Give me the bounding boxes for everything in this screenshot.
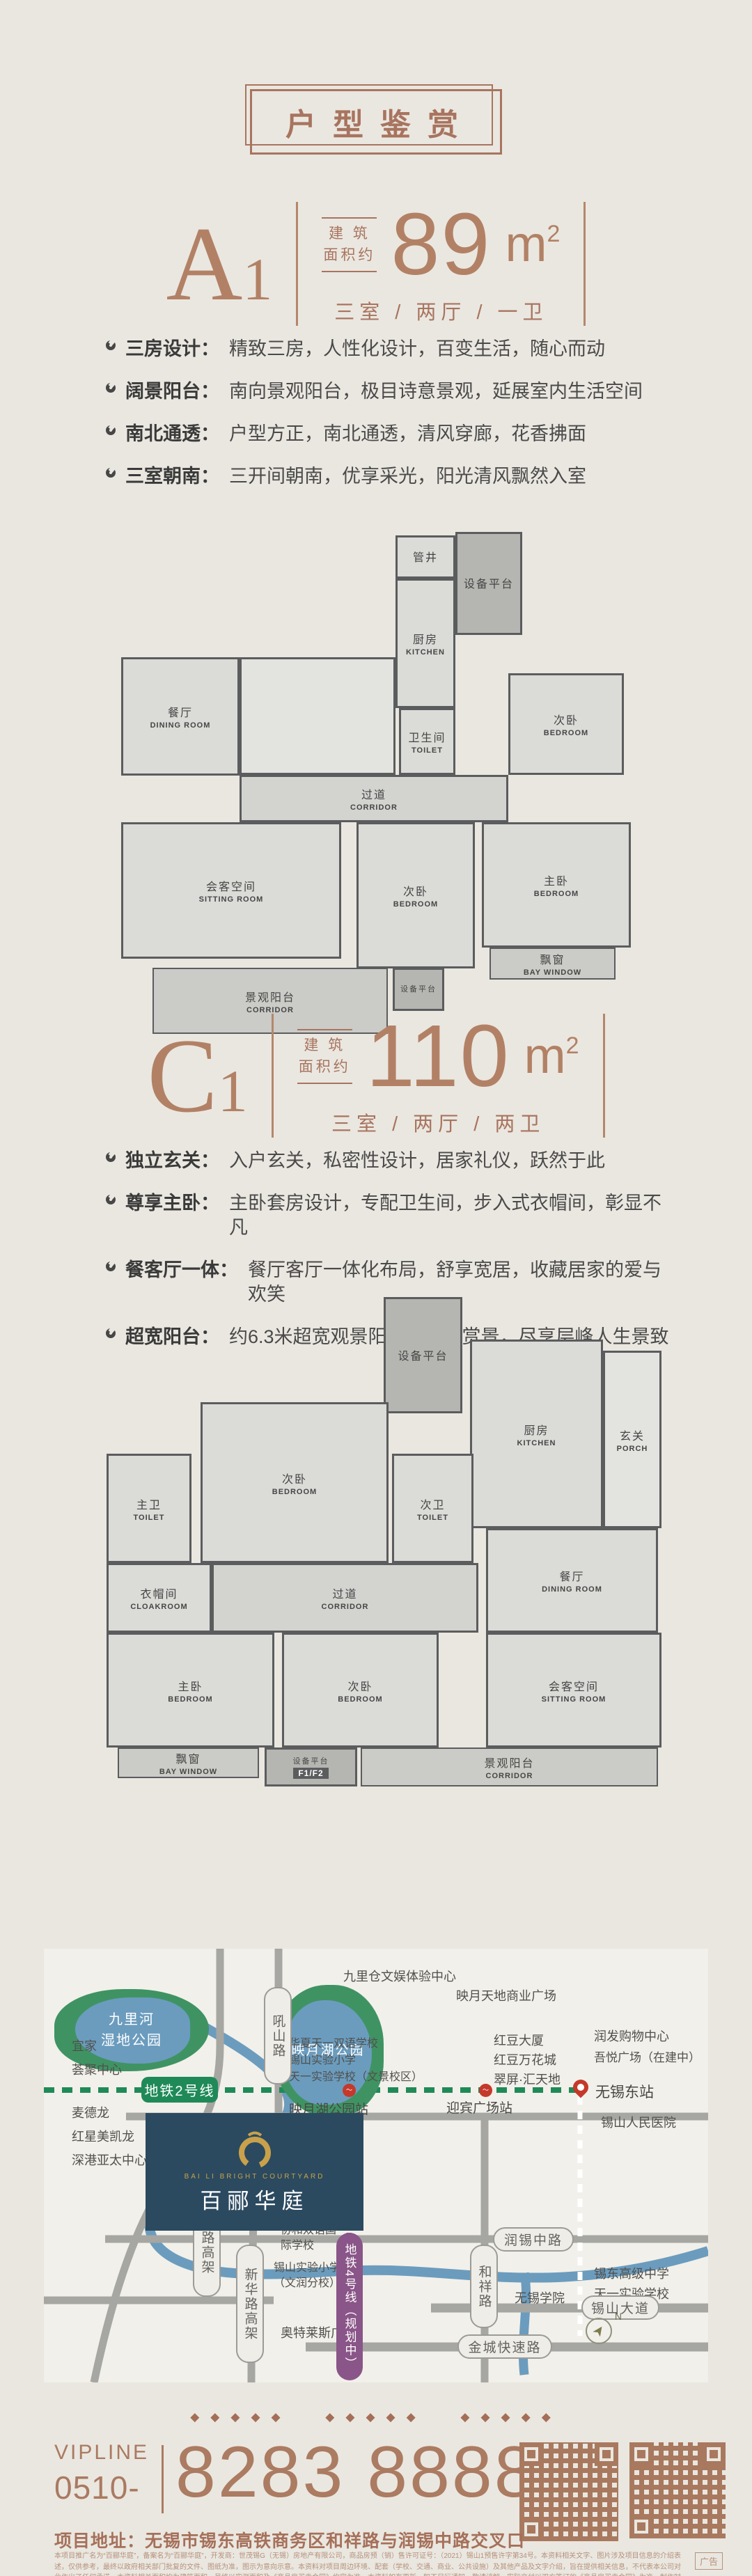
plan-area (240, 657, 395, 775)
qr-code (519, 2442, 618, 2541)
divider (272, 1014, 274, 1138)
plan-room: 次卧BEDROOM (508, 673, 624, 775)
station-label: 迎宾广场站 (446, 2098, 512, 2116)
unit-code-number: 1 (242, 246, 272, 313)
project-name-cn: 百郦华庭 (201, 2183, 309, 2215)
compass-icon: ➤ N (586, 2318, 612, 2344)
map-label: 锡山人民医院 (601, 2114, 676, 2131)
ring-icon (106, 340, 116, 350)
metro-line2-label: 地铁2号线 (141, 2077, 218, 2103)
feature-item: 尊享主卧： 主卧套房设计，专配卫生间，步入式衣帽间，彰显不凡 (106, 1191, 670, 1240)
road-label-houshanlu: 吼山路 (264, 1987, 292, 2084)
project-name-en: BAI LI BRIGHT COURTYARD (185, 2173, 325, 2181)
map-label: 映月天地商业广场 (456, 1988, 556, 2004)
map-label: 华夏天一双语学校 (289, 2036, 378, 2052)
map-label: 九里仓文娱体验中心 (343, 1968, 456, 1985)
plan-room: 次卫TOILET (392, 1454, 473, 1563)
ring-icon (106, 468, 116, 478)
floorplan-a1: 管井 设备平台 厨房KITCHEN 餐厅DINING ROOM 卫生间TOILE… (106, 517, 646, 1042)
unit-code-letter: C (147, 1017, 217, 1134)
plan-room: 会客空间SITTING ROOM (121, 822, 341, 959)
qr-code (629, 2442, 726, 2538)
road-label-runxizhonglu: 润锡中路 (493, 2227, 574, 2252)
unit-a1-code: A1 (166, 211, 273, 317)
plan-room: 次卧BEDROOM (357, 822, 475, 968)
ring-icon (106, 1152, 116, 1162)
park-label: 九里河湿地公园 (101, 2009, 162, 2051)
qr-finder (629, 2515, 653, 2538)
plan-room: 次卧BEDROOM (282, 1633, 439, 1748)
metro-station-icon: 〜 (343, 2084, 356, 2097)
plan-room: 设备平台 (384, 1297, 462, 1413)
area-unit: m2 (506, 219, 561, 269)
qr-finder (702, 2442, 726, 2466)
map-label: 锡东高级中学 (594, 2265, 669, 2282)
feature-item: 阔景阳台： 南向景观阳台，极目诗意景观，延展室内生活空间 (106, 379, 670, 404)
tel-prefix: 0510- (54, 2469, 149, 2506)
project-marker: BAI LI BRIGHT COURTYARD 百郦华庭 (146, 2113, 363, 2231)
unit-code-number: 1 (218, 1058, 248, 1124)
road-label-xinhualu: 新华路高架 (236, 2245, 264, 2363)
plan-room: 次卧BEDROOM (201, 1402, 389, 1563)
road-label-hexianglu: 和祥路 (470, 2245, 498, 2328)
plan-room: 景观阳台CORRIDOR (361, 1748, 658, 1786)
unit-code-letter: A (166, 205, 243, 322)
map-label: 天一实验学校（文景校区） (289, 2070, 423, 2085)
area-unit: m2 (524, 1031, 579, 1081)
unit-a1-area-block: 建 筑 面积约 89 m2 三室 / 两厅 / 一卫 (322, 203, 560, 325)
plan-room: 飘窗BAY WINDOW (489, 948, 616, 980)
project-address: 项目地址：无锡市锡东高铁商务区和祥路与润锡中路交叉口 (54, 2527, 525, 2552)
area-value: 110 (366, 1014, 510, 1098)
divider (603, 1014, 605, 1138)
plan-room: 设备平台F1/F2 (265, 1748, 357, 1786)
feature-item: 三室朝南： 三开间朝南，优享采光，阳光清风飘然入室 (106, 464, 670, 489)
diamond-ornament: ◆◆◆◆◆ ◆◆◆◆◆ ◆◆◆◆◆ (0, 2410, 752, 2424)
map-label: 宜家 (72, 2038, 97, 2055)
ring-icon (106, 1262, 116, 1271)
feature-item: 三房设计： 精致三房，人性化设计，百变生活，随心而动 (106, 337, 670, 361)
plan-room: 会客空间SITTING ROOM (486, 1633, 661, 1748)
unit-c1-area-block: 建 筑 面积约 110 m2 三室 / 两厅 / 两卫 (297, 1014, 579, 1137)
unit-c1-header: C1 建 筑 面积约 110 m2 三室 / 两厅 / 两卫 (0, 1014, 752, 1138)
plan-room: 主卧BEDROOM (107, 1633, 274, 1748)
poster-page: 户型鉴赏 A1 建 筑 面积约 89 m2 三室 / 两厅 / 一卫 三房设计：… (0, 0, 752, 2576)
page-title: 户型鉴赏 (277, 100, 475, 144)
map-label: 荟聚中心 (72, 2061, 122, 2078)
divider (162, 2445, 164, 2513)
page-title-frame: 户型鉴赏 (250, 89, 502, 155)
map-label: 深港亚太中心 (72, 2152, 147, 2169)
disclaimer-text: 本项目推广名为“百郦华庭”，备案名为“百郦华庭”，开发商：世茂锡G（无锡）房地产… (54, 2551, 681, 2576)
map-label: 麦德龙 (72, 2105, 109, 2121)
map-label: 无锡学院 (515, 2290, 565, 2307)
floorplan-c1: 设备平台 厨房KITCHEN 玄关PORCH 主卫TOILET 次卧BEDROO… (86, 1285, 666, 1796)
plan-room: 卫生间TOILET (399, 708, 455, 775)
unit-layout: 三室 / 两厅 / 一卫 (334, 296, 547, 325)
metro-line4-label: 地铁4号线（规划中） (336, 2233, 363, 2380)
qr-finder (595, 2442, 618, 2466)
plan-room: 过道CORRIDOR (212, 1563, 478, 1633)
map-label: 翠屏·汇天地 (494, 2071, 561, 2088)
feature-item: 南北通透： 户型方正，南北通透，清风穿廊，花香拂面 (106, 422, 670, 446)
location-map: 九里河湿地公园 映月湖公园 吼山路 高浪路高架 新华路高架 和祥路 润锡中路 锡… (44, 1949, 708, 2382)
road-label-jinchengkuaisulu: 金城快速路 (457, 2334, 552, 2359)
plan-room: 飘窗BAY WINDOW (118, 1748, 259, 1778)
map-label: 吾悦广场（在建中） (594, 2050, 700, 2066)
map-label: 锡山实验小学 (289, 2053, 356, 2068)
area-label: 建 筑 面积约 (297, 1029, 352, 1084)
plan-room: 管井 (395, 535, 455, 579)
unit-layout: 三室 / 两厅 / 两卫 (331, 1108, 545, 1137)
map-label: 润发购物中心 (594, 2028, 669, 2045)
project-logo-icon (233, 2130, 276, 2170)
metro-station-icon: 〜 (479, 2084, 492, 2097)
area-value: 89 (391, 203, 491, 286)
unit-a1-features: 三房设计： 精致三房，人性化设计，百变生活，随心而动 阔景阳台： 南向景观阳台，… (106, 337, 670, 507)
map-label: 红星美凯龙 (72, 2128, 134, 2145)
plan-room: 设备平台 (455, 532, 522, 635)
ring-icon (106, 383, 116, 393)
plan-room: 餐厅DINING ROOM (121, 657, 240, 776)
plan-room: 玄关PORCH (603, 1351, 661, 1528)
plan-room: 过道CORRIDOR (240, 775, 508, 822)
phone-number: 8283 8888 (175, 2433, 537, 2512)
plan-room: 设备平台 (393, 968, 444, 1011)
ring-icon (106, 1195, 116, 1204)
unit-c1-code: C1 (147, 1023, 247, 1129)
divider (296, 202, 298, 326)
vipline-label: VIPLINE (54, 2441, 149, 2465)
map-label: 红豆万花城 (494, 2052, 556, 2068)
divider (583, 202, 586, 326)
plan-room: 厨房KITCHEN (470, 1340, 603, 1528)
station-label: 无锡东站 (595, 2081, 654, 2102)
feature-item: 独立玄关： 入户玄关，私密性设计，居家礼仪，跃然于此 (106, 1149, 670, 1173)
plan-room: 主卫TOILET (107, 1454, 191, 1563)
qr-finder (519, 2442, 543, 2466)
ring-icon (106, 425, 116, 435)
plan-room: 厨房KITCHEN (395, 579, 455, 708)
area-label: 建 筑 面积约 (322, 217, 377, 272)
plan-room: 衣帽间CLOAKROOM (107, 1563, 212, 1633)
unit-a1-header: A1 建 筑 面积约 89 m2 三室 / 两厅 / 一卫 (0, 202, 752, 326)
vipline-block: VIPLINE 0510- (54, 2441, 149, 2506)
ad-badge: 广告 (695, 2552, 723, 2570)
qr-finder (629, 2442, 653, 2466)
plan-room: 餐厅DINING ROOM (486, 1528, 658, 1633)
plan-room: 主卧BEDROOM (482, 822, 631, 948)
map-label: 红豆大厦 (494, 2032, 544, 2049)
